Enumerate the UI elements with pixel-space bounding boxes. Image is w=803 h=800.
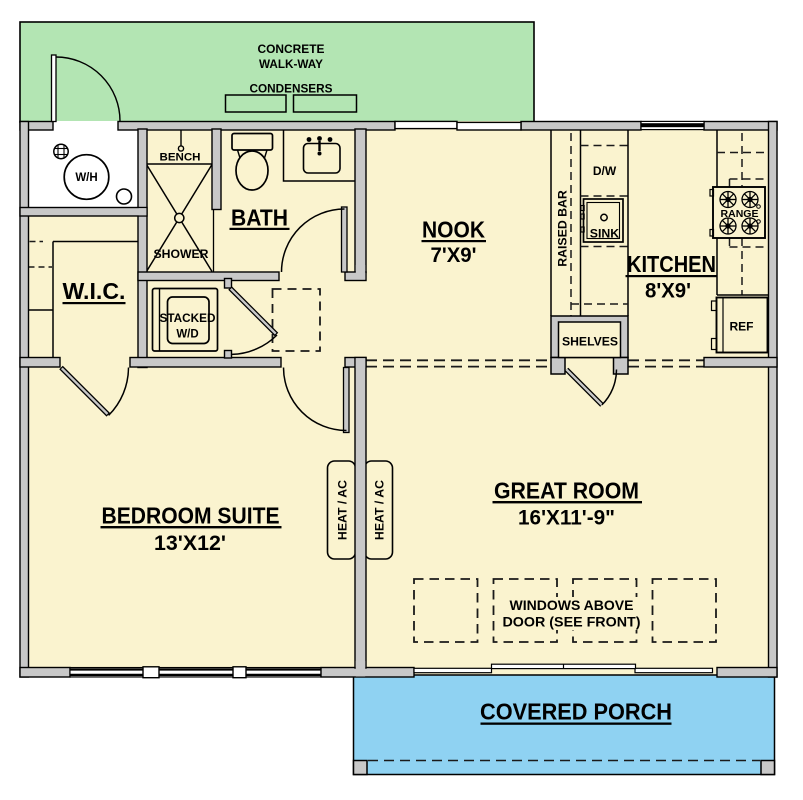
svg-text:GREAT ROOM: GREAT ROOM xyxy=(494,478,639,504)
svg-text:HEAT / AC: HEAT / AC xyxy=(336,480,350,540)
svg-text:W/D: W/D xyxy=(176,329,198,341)
svg-text:STACKED: STACKED xyxy=(160,313,216,325)
svg-text:RAISED BAR: RAISED BAR xyxy=(556,190,570,267)
svg-text:BATH: BATH xyxy=(231,204,288,230)
svg-text:BEDROOM SUITE: BEDROOM SUITE xyxy=(102,503,280,529)
svg-text:NOOK: NOOK xyxy=(422,217,485,243)
svg-text:COVERED PORCH: COVERED PORCH xyxy=(480,699,672,725)
svg-text:16'X11'-9": 16'X11'-9" xyxy=(518,506,615,530)
svg-text:SINK: SINK xyxy=(590,227,619,241)
svg-text:SHOWER: SHOWER xyxy=(154,247,209,261)
svg-text:8'X9': 8'X9' xyxy=(645,279,691,303)
svg-text:W.I.C.: W.I.C. xyxy=(63,278,126,304)
svg-text:SHELVES: SHELVES xyxy=(562,335,618,349)
svg-text:REF: REF xyxy=(730,320,754,334)
svg-text:W/H: W/H xyxy=(75,172,97,184)
svg-text:CONDENSERS: CONDENSERS xyxy=(250,82,333,96)
svg-text:D/W: D/W xyxy=(593,164,617,178)
svg-text:WINDOWS ABOVE: WINDOWS ABOVE xyxy=(510,598,634,613)
svg-text:DOOR (SEE FRONT): DOOR (SEE FRONT) xyxy=(503,615,641,630)
svg-text:RANGE: RANGE xyxy=(721,208,759,220)
svg-text:CONCRETE: CONCRETE xyxy=(258,42,325,56)
svg-text:WALK-WAY: WALK-WAY xyxy=(259,57,323,71)
svg-text:HEAT / AC: HEAT / AC xyxy=(373,480,387,540)
svg-text:7'X9': 7'X9' xyxy=(431,243,477,267)
svg-text:BENCH: BENCH xyxy=(160,152,201,164)
svg-text:13'X12': 13'X12' xyxy=(154,531,226,555)
svg-text:KITCHEN: KITCHEN xyxy=(627,251,716,277)
